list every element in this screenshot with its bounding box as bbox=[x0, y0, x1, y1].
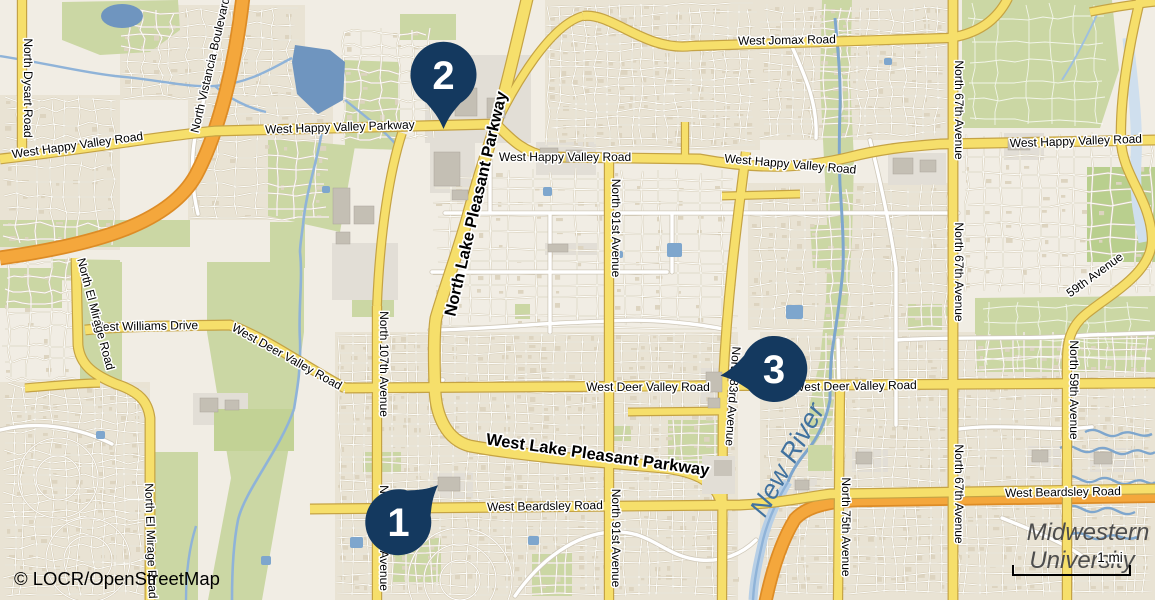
svg-text:2: 2 bbox=[432, 54, 454, 98]
svg-text:1: 1 bbox=[387, 501, 409, 545]
svg-text:West Beardsley Road: West Beardsley Road bbox=[487, 498, 603, 514]
svg-text:North 67th Avenue: North 67th Avenue bbox=[952, 222, 966, 322]
svg-text:North 91st Avenue: North 91st Avenue bbox=[609, 179, 623, 278]
svg-text:North 75th Avenue: North 75th Avenue bbox=[839, 477, 853, 577]
svg-text:North Dysart Road: North Dysart Road bbox=[21, 38, 35, 137]
svg-text:West Beardsley Road: West Beardsley Road bbox=[1005, 484, 1121, 500]
svg-text:North 107th Avenue: North 107th Avenue bbox=[377, 311, 391, 417]
svg-text:North 67th Avenue: North 67th Avenue bbox=[952, 60, 966, 160]
svg-text:North 91st Avenue: North 91st Avenue bbox=[609, 489, 623, 588]
svg-text:3: 3 bbox=[763, 348, 785, 392]
svg-text:North 59th Avenue: North 59th Avenue bbox=[1067, 340, 1081, 440]
svg-text:West Jomax Road: West Jomax Road bbox=[738, 32, 836, 48]
svg-text:West Happy Valley Road: West Happy Valley Road bbox=[499, 150, 631, 164]
svg-text:West Deer Valley Road: West Deer Valley Road bbox=[586, 380, 710, 394]
svg-text:Midwestern: Midwestern bbox=[1027, 519, 1150, 546]
svg-text:© LOCR/OpenStreetMap: © LOCR/OpenStreetMap bbox=[14, 568, 220, 589]
svg-text:1 mi: 1 mi bbox=[1097, 550, 1123, 565]
svg-text:North 67th Avenue: North 67th Avenue bbox=[952, 444, 966, 544]
svg-text:West Deer Valley Road: West Deer Valley Road bbox=[793, 378, 917, 394]
